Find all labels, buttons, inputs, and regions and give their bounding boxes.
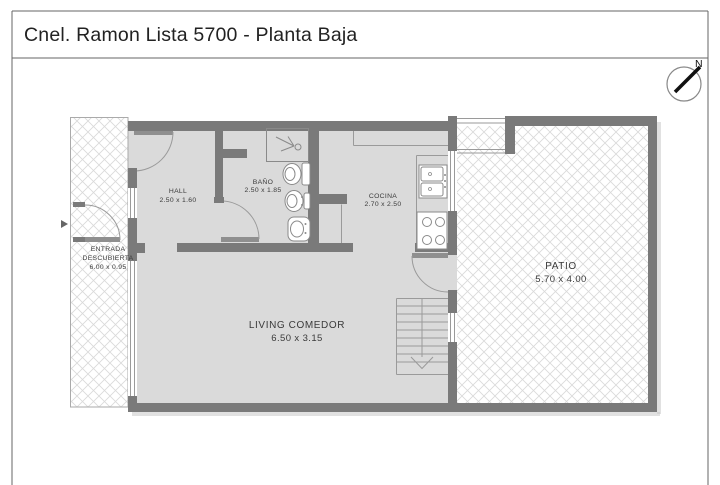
patio-front-window	[457, 116, 505, 126]
entrada-floor	[71, 118, 129, 408]
north-arrow-icon	[675, 67, 700, 92]
floor-plan-page: Cnel. Ramon Lista 5700 - Planta Baja N	[0, 0, 720, 485]
living-comedor-label: LIVING COMEDOR	[249, 320, 345, 331]
living-left-window	[128, 261, 137, 396]
patio-dimensions: 5.70 x 4.00	[535, 274, 586, 285]
bidet-icon	[285, 191, 310, 212]
entrada-door-leaf	[85, 237, 120, 242]
stove-icon	[417, 212, 447, 249]
entrada-label-line2: DESCUBIERTA	[82, 255, 133, 262]
kitchen-window	[448, 151, 457, 211]
cocina-dimensions: 2.70 x 2.50	[365, 201, 402, 208]
bathroom-sink-icon	[288, 217, 310, 241]
entrada-label-line1: ENTRADA	[91, 246, 126, 253]
hall-dimensions: 2.50 x 1.60	[160, 197, 197, 204]
north-label: N	[695, 58, 703, 70]
banio-label: BAÑO	[253, 177, 273, 186]
patio-door-leaf	[412, 253, 448, 258]
banio-dimensions: 2.50 x 1.85	[245, 187, 282, 194]
hall-window	[128, 188, 137, 218]
toilet-icon	[283, 163, 310, 185]
living-comedor-dimensions: 6.50 x 3.15	[271, 333, 322, 344]
patio-label: PATIO	[545, 261, 577, 272]
hall-label: HALL	[169, 188, 187, 195]
floor-plan-drawing: Cnel. Ramon Lista 5700 - Planta Baja N	[0, 0, 720, 485]
page-title: Cnel. Ramon Lista 5700 - Planta Baja	[24, 24, 357, 46]
kitchen-sink-icon	[419, 165, 447, 198]
living-patio-window	[448, 313, 457, 342]
bathroom-door-leaf	[221, 237, 259, 242]
entrance-marker-icon	[61, 220, 68, 228]
entrada-dimensions: 6.00 x 0.95	[90, 264, 127, 271]
cocina-label: COCINA	[369, 193, 397, 200]
north-compass: N	[667, 58, 703, 101]
